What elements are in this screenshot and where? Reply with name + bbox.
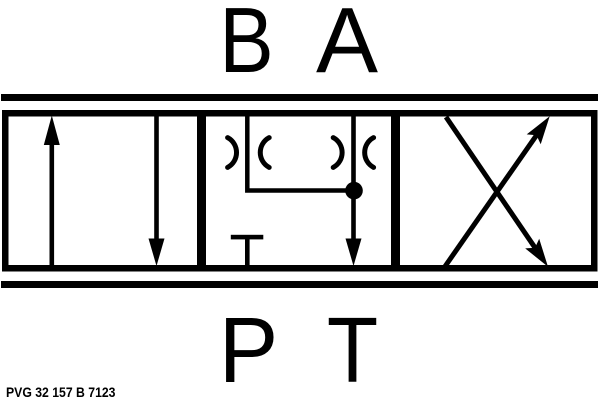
svg-text:PVG 32 157 B 7123: PVG 32 157 B 7123 [6,385,116,400]
svg-text:A: A [316,0,378,92]
svg-text:T: T [327,298,378,400]
svg-text:P: P [219,298,279,400]
svg-text:B: B [219,0,274,92]
